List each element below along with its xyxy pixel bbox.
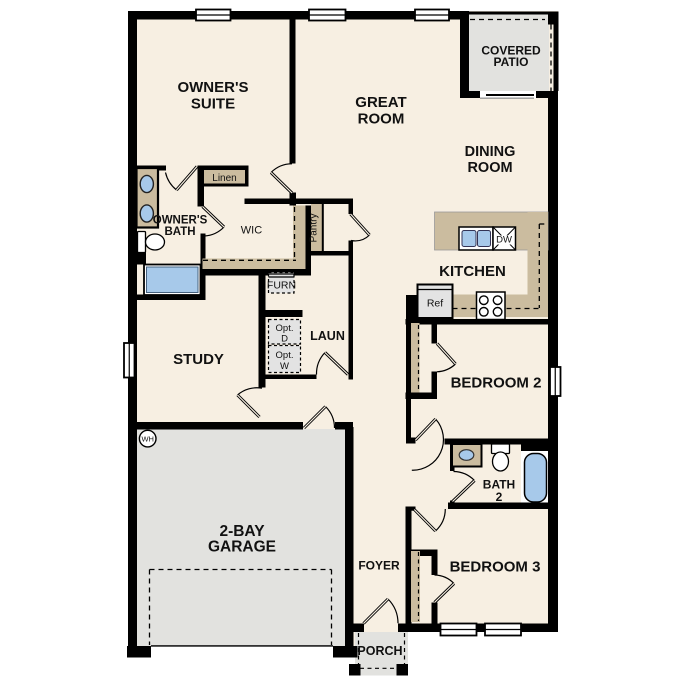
svg-text:Opt.: Opt. [276, 323, 294, 334]
svg-text:STUDY: STUDY [173, 351, 224, 368]
svg-text:KITCHEN: KITCHEN [439, 263, 506, 280]
svg-text:PATIO: PATIO [494, 55, 529, 69]
svg-text:DW: DW [496, 235, 512, 246]
svg-text:W: W [280, 361, 289, 372]
svg-text:WIC: WIC [241, 225, 262, 237]
svg-text:BEDROOM 3: BEDROOM 3 [450, 559, 541, 576]
svg-text:2: 2 [496, 490, 503, 504]
svg-text:WH: WH [141, 434, 154, 443]
svg-text:Ref: Ref [427, 298, 443, 310]
svg-text:BEDROOM 2: BEDROOM 2 [451, 375, 542, 392]
svg-text:FOYER: FOYER [358, 559, 400, 573]
svg-text:LAUN: LAUN [310, 329, 345, 343]
svg-text:GREAT: GREAT [355, 94, 406, 111]
svg-text:Linen: Linen [212, 173, 236, 184]
svg-text:OWNER'S: OWNER'S [177, 79, 248, 96]
svg-text:ROOM: ROOM [467, 160, 512, 176]
svg-text:SUITE: SUITE [191, 96, 235, 113]
svg-text:FURN: FURN [267, 280, 296, 292]
svg-text:ROOM: ROOM [358, 111, 405, 128]
svg-text:Opt.: Opt. [276, 350, 294, 361]
svg-text:Pantry: Pantry [309, 214, 320, 243]
svg-text:D: D [281, 334, 288, 345]
svg-text:DINING: DINING [465, 144, 516, 160]
svg-text:2-BAY: 2-BAY [219, 523, 265, 540]
svg-text:BATH: BATH [164, 226, 195, 238]
svg-text:GARAGE: GARAGE [208, 539, 276, 556]
svg-text:OWNER'S: OWNER'S [153, 214, 208, 226]
svg-text:PORCH: PORCH [357, 644, 402, 658]
